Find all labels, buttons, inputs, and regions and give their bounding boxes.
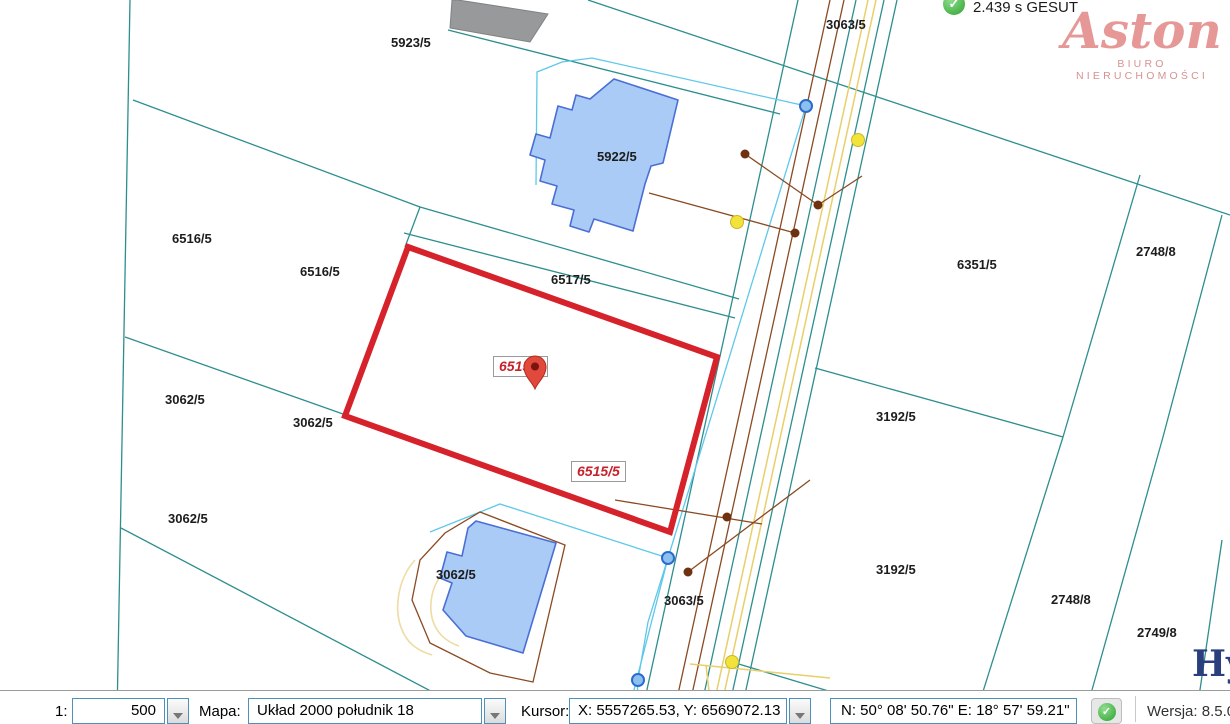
map-select[interactable]: Układ 2000 południk 18 <box>248 698 482 724</box>
parcel-label: 3062/5 <box>436 567 476 582</box>
cursor-dropdown-button[interactable] <box>789 698 811 724</box>
parcel-label: 3063/5 <box>664 593 704 608</box>
logo-subtitle: BIURO NIERUCHOMOŚCI <box>1062 58 1222 82</box>
gesut-status: 2.439 s GESUT <box>943 0 1078 16</box>
cursor-label: Kursor: <box>521 703 569 720</box>
gesut-check-icon <box>943 0 965 15</box>
parcel-label: 5922/5 <box>597 149 637 164</box>
scale-dropdown-button[interactable] <box>167 698 189 724</box>
parcel-label: 6517/5 <box>551 272 591 287</box>
chevron-down-icon <box>490 713 500 719</box>
cursor-coordinates-select[interactable]: X: 5557265.53, Y: 6569072.13 <box>569 698 787 724</box>
gis-map-viewer: { "colors": { "teal": "#2d8e8e", "cyan":… <box>0 0 1230 717</box>
parcel-label: 3192/5 <box>876 409 916 424</box>
parcel-label: 2749/8 <box>1137 625 1177 640</box>
building-3062 <box>440 521 556 653</box>
version-text: Wersja: 8.5.0 <box>1147 703 1230 720</box>
agency-logo: Aston BIURO NIERUCHOMOŚCI <box>1062 2 1222 82</box>
geo-coordinates-field[interactable]: N: 50° 08' 50.76" E: 18° 57' 59.21" <box>830 698 1077 724</box>
parcel-label: 6351/5 <box>957 257 997 272</box>
parcel-label: 6516/5 <box>300 264 340 279</box>
watermark-text: Hyp <box>1192 643 1230 685</box>
scale-label: 1: <box>55 703 68 720</box>
map-dropdown-button[interactable] <box>484 698 506 724</box>
status-toolbar: 1: 500 Mapa: Układ 2000 południk 18 Kurs… <box>0 690 1230 718</box>
map-canvas[interactable] <box>0 0 1230 691</box>
parcel-label: 3192/5 <box>876 562 916 577</box>
toolbar-divider <box>1135 696 1136 722</box>
parcel-label: 6516/5 <box>172 231 212 246</box>
check-icon <box>1098 703 1116 721</box>
chevron-down-icon <box>173 713 183 719</box>
parcel-label: 3062/5 <box>293 415 333 430</box>
selected-parcel-label: 6515/5 <box>571 461 626 482</box>
parcel-label: 2748/8 <box>1051 592 1091 607</box>
map-label: Mapa: <box>199 703 241 720</box>
gray-building <box>450 0 548 42</box>
parcel-label: 2748/8 <box>1136 244 1176 259</box>
confirm-button[interactable] <box>1091 698 1122 724</box>
parcel-label: 5923/5 <box>391 35 431 50</box>
location-pin-icon[interactable] <box>520 355 550 391</box>
chevron-down-icon <box>795 713 805 719</box>
parcel-label: 3063/5 <box>826 17 866 32</box>
parcel-label: 3062/5 <box>165 392 205 407</box>
parcel-label: 3062/5 <box>168 511 208 526</box>
scale-input[interactable]: 500 <box>72 698 165 724</box>
logo-title: Aston <box>1062 2 1222 60</box>
